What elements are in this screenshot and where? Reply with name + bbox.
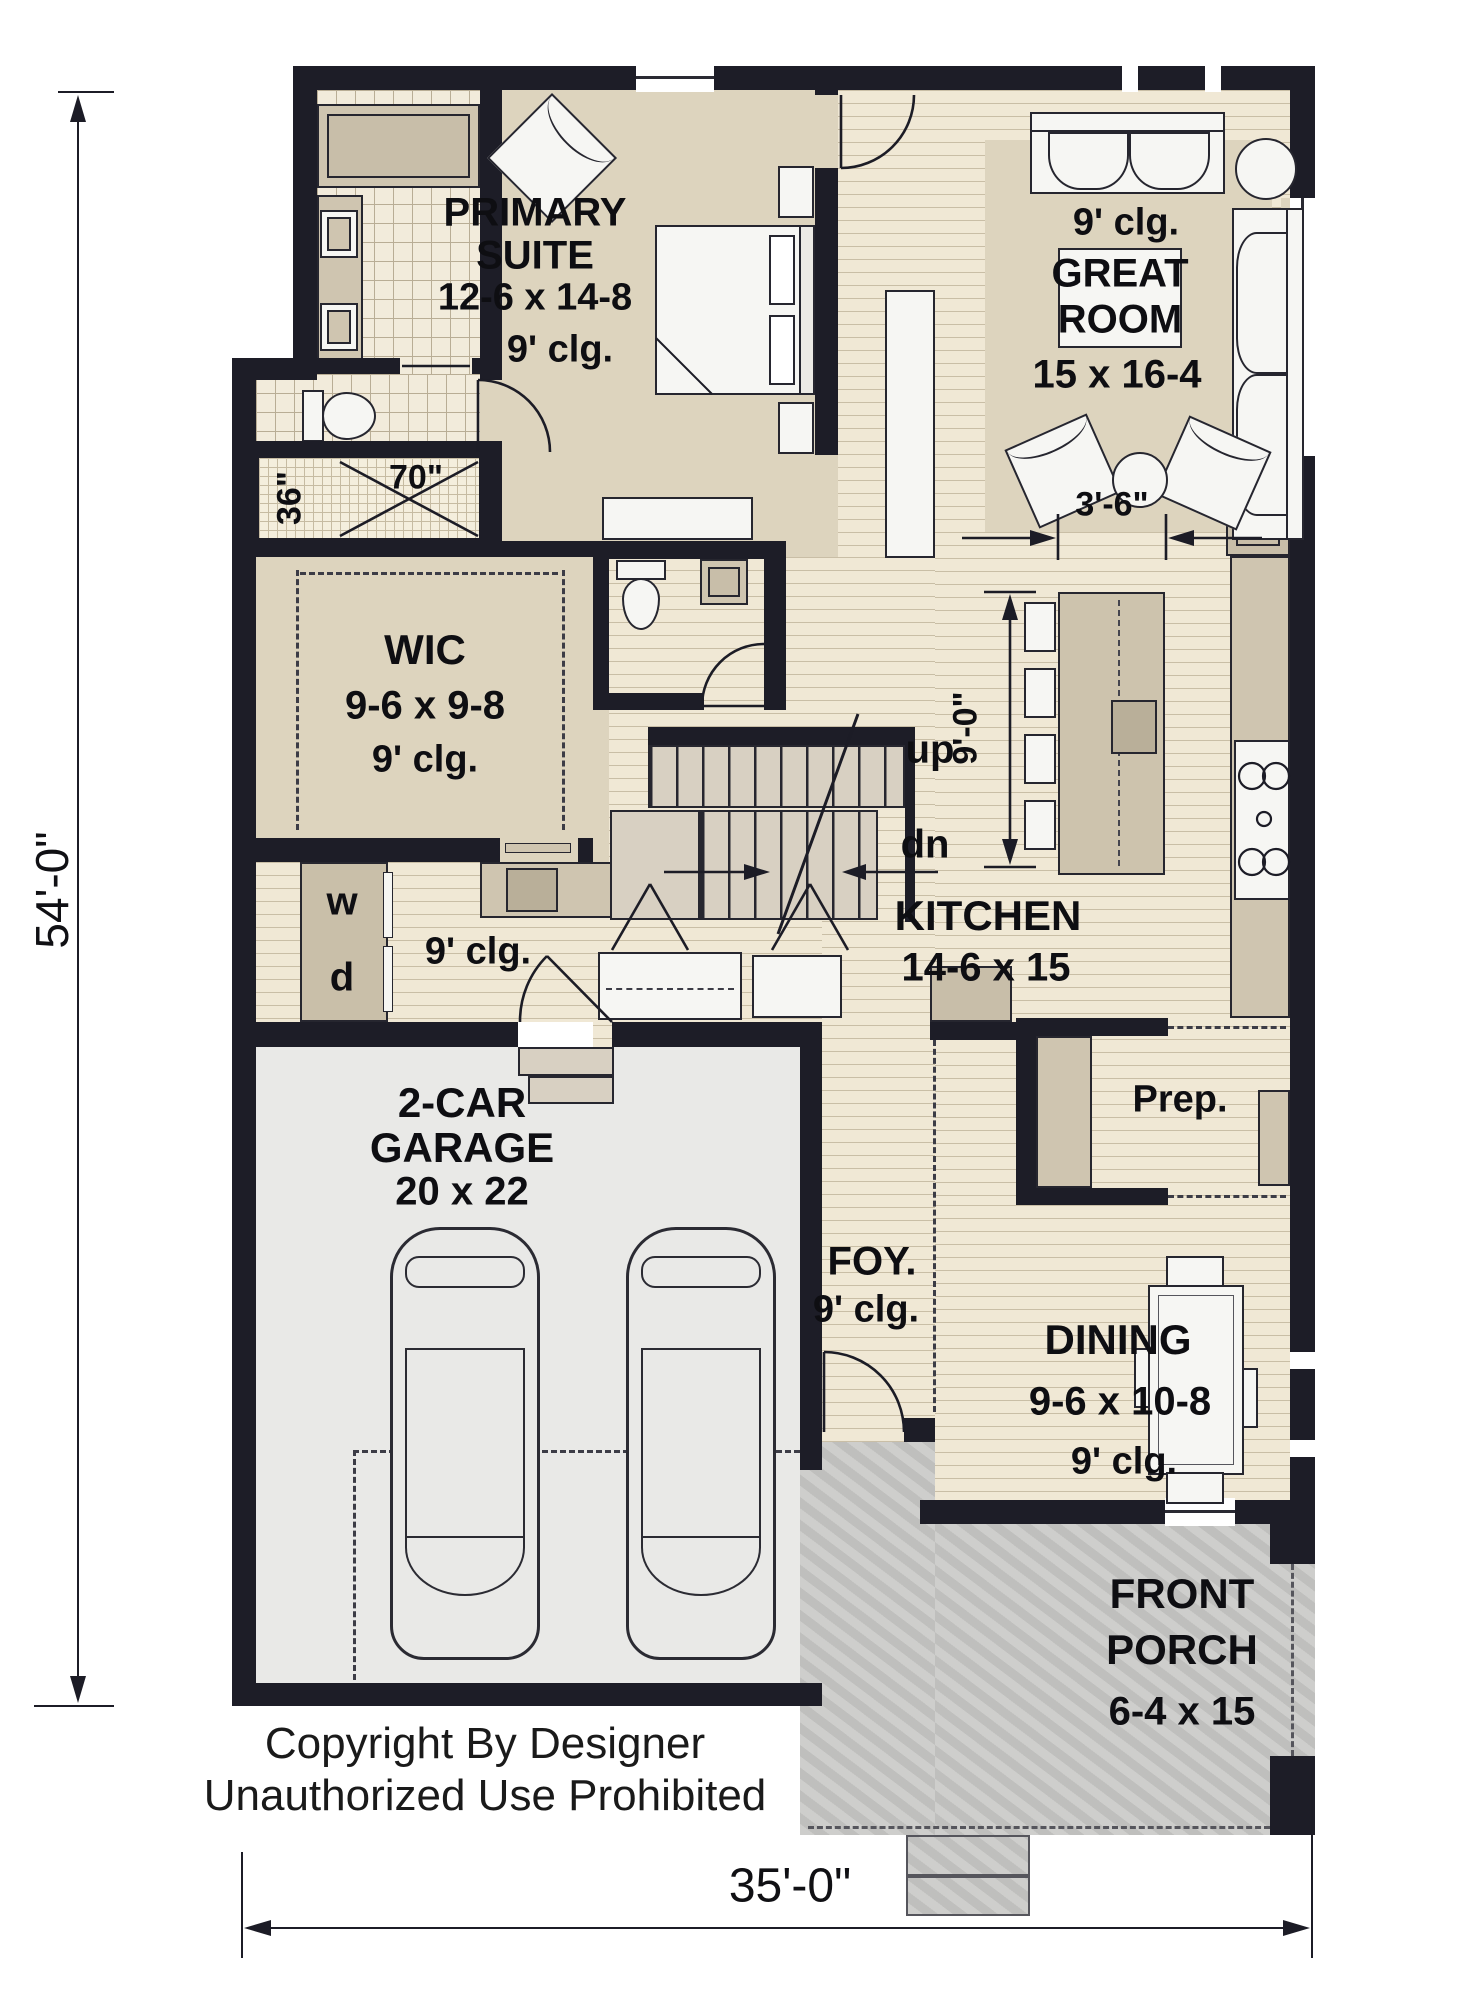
primary-suite-label-1: PRIMARY <box>444 191 627 236</box>
shower-width-label: 36" <box>271 471 310 525</box>
garage-size: 20 x 22 <box>395 1170 528 1215</box>
door-suite-entry <box>841 95 914 168</box>
primary-suite-clg: 9' clg. <box>507 329 613 372</box>
dining-clg: 9' clg. <box>1071 1441 1177 1484</box>
dim-overall-height-label: 54'-0" <box>25 831 79 948</box>
laundry-dryer-label: d <box>330 956 354 1001</box>
cooktop-burners <box>1239 763 1289 875</box>
porch-size: 6-4 x 15 <box>1109 1690 1256 1735</box>
dim-island-length <box>984 592 1036 867</box>
wic-label: WIC <box>384 626 466 674</box>
stairs-dn-label: dn <box>901 823 950 868</box>
foyer-clg: 9' clg. <box>813 1289 919 1332</box>
door-coat-closet <box>612 884 688 950</box>
stair-break-line <box>778 714 858 934</box>
garage-label-2: GARAGE <box>370 1124 554 1172</box>
porch-label-1: FRONT <box>1110 1570 1255 1618</box>
door-bath-vestibule <box>478 380 550 452</box>
wic-size: 9-6 x 9-8 <box>345 684 505 729</box>
great-room-label-1: GREAT <box>1051 252 1188 297</box>
primary-suite-size: 12-6 x 14-8 <box>438 277 632 320</box>
dim-overall-width-label: 35'-0" <box>729 1859 851 1914</box>
prep-label: Prep. <box>1132 1079 1227 1122</box>
shower-length-label: 70" <box>389 459 443 498</box>
laundry-washer-label: w <box>326 880 357 925</box>
great-room-clg: 9' clg. <box>1073 202 1179 245</box>
dim-island-clear-label: 3'-6" <box>1075 486 1148 525</box>
dining-label: DINING <box>1045 1316 1192 1364</box>
kitchen-label: KITCHEN <box>895 892 1082 940</box>
wic-clg: 9' clg. <box>372 739 478 782</box>
dim-island-length-label: 9'-0" <box>947 691 986 764</box>
door-front <box>824 1352 904 1432</box>
great-room-label-2: ROOM <box>1058 298 1182 343</box>
floor-plan: PRIMARY SUITE 12-6 x 14-8 9' clg. 9' clg… <box>0 0 1469 2000</box>
bed-fold-line <box>656 338 712 394</box>
hall-clg-label: 9' clg. <box>425 931 531 974</box>
kitchen-size: 14-6 x 15 <box>901 946 1070 991</box>
primary-suite-label-2: SUITE <box>476 234 594 279</box>
great-room-size: 15 x 16-4 <box>1032 353 1201 398</box>
door-wc <box>702 644 764 706</box>
dining-size: 9-6 x 10-8 <box>1029 1380 1211 1425</box>
foyer-label: FOY. <box>828 1240 917 1285</box>
porch-label-2: PORCH <box>1106 1626 1258 1674</box>
copyright-line-2: Unauthorized Use Prohibited <box>204 1771 767 1821</box>
copyright-line-1: Copyright By Designer <box>265 1719 705 1769</box>
door-garage-entry <box>520 956 612 1022</box>
garage-label-1: 2-CAR <box>398 1079 526 1127</box>
